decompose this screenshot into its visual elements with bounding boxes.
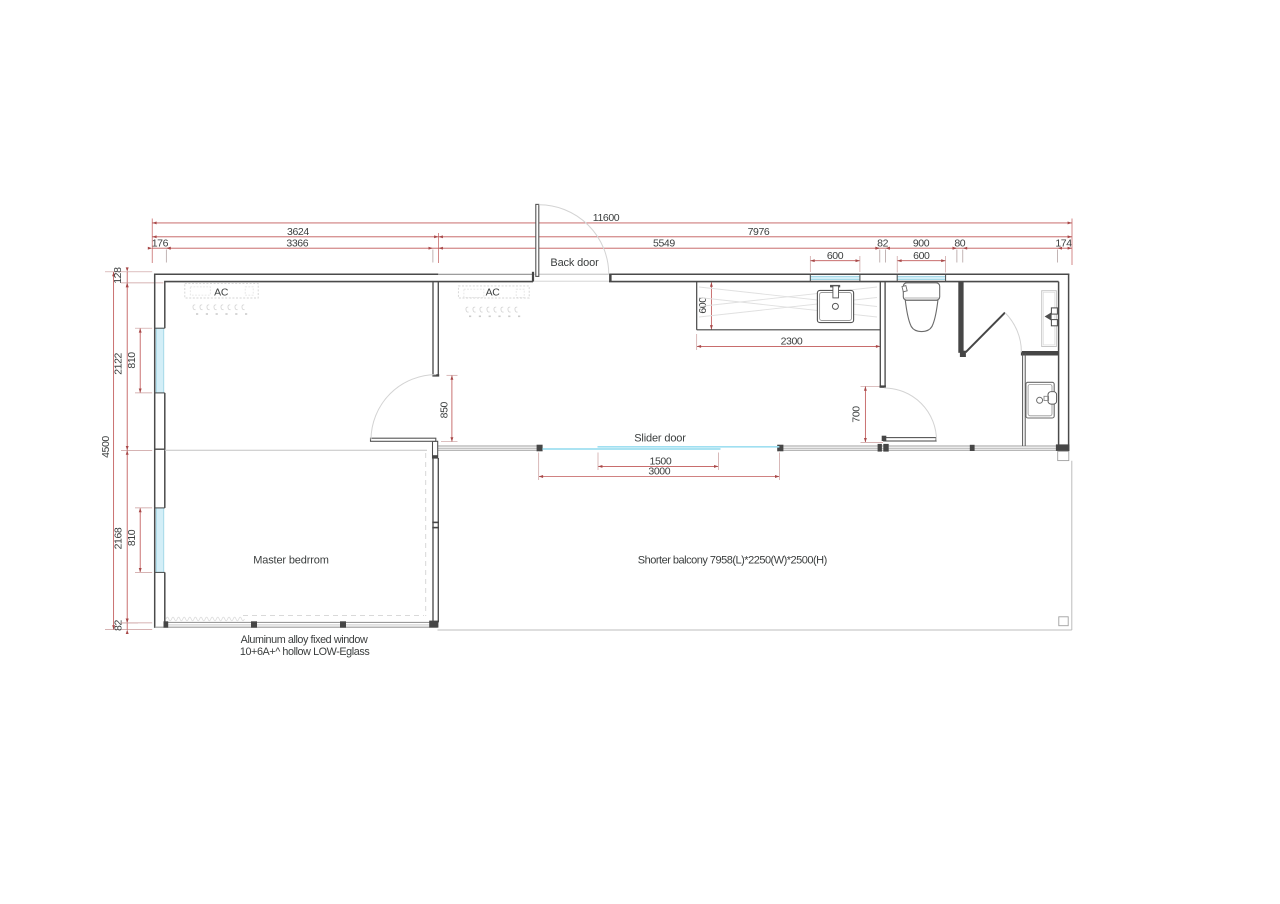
svg-text:Slider door: Slider door (634, 432, 686, 444)
svg-text:810: 810 (126, 529, 138, 546)
svg-text:174: 174 (1055, 237, 1072, 249)
svg-text:3000: 3000 (648, 466, 670, 478)
svg-text:Back door: Back door (550, 257, 599, 269)
svg-text:176: 176 (152, 237, 169, 249)
svg-text:2300: 2300 (781, 336, 803, 348)
svg-text:82: 82 (877, 237, 888, 249)
svg-text:Aluminum alloy fixed window: Aluminum alloy fixed window (241, 634, 368, 646)
svg-text:5549: 5549 (653, 237, 675, 249)
svg-text:128: 128 (112, 267, 124, 284)
svg-text:AC: AC (486, 288, 501, 299)
svg-text:80: 80 (954, 237, 965, 249)
svg-text:Master bedrrom: Master bedrrom (253, 555, 329, 567)
svg-text:3624: 3624 (287, 226, 309, 238)
svg-text:82: 82 (112, 620, 124, 631)
svg-text:850: 850 (439, 401, 451, 418)
svg-text:600: 600 (913, 250, 930, 262)
svg-text:10+6A+^ hollow LOW-Eglass: 10+6A+^ hollow LOW-Eglass (240, 646, 370, 658)
svg-text:600: 600 (827, 250, 844, 262)
svg-text:900: 900 (913, 237, 930, 249)
svg-text:2122: 2122 (112, 352, 124, 374)
svg-text:700: 700 (851, 406, 863, 423)
svg-text:810: 810 (126, 352, 138, 369)
svg-text:AC: AC (214, 288, 229, 299)
svg-text:4500: 4500 (100, 436, 112, 458)
svg-text:7976: 7976 (748, 226, 770, 238)
svg-text:2168: 2168 (112, 527, 124, 549)
svg-text:Shorter balcony 7958(L)*2250(W: Shorter balcony 7958(L)*2250(W)*2500(H) (638, 555, 827, 567)
svg-text:11600: 11600 (593, 212, 620, 224)
svg-text:3366: 3366 (286, 237, 308, 249)
